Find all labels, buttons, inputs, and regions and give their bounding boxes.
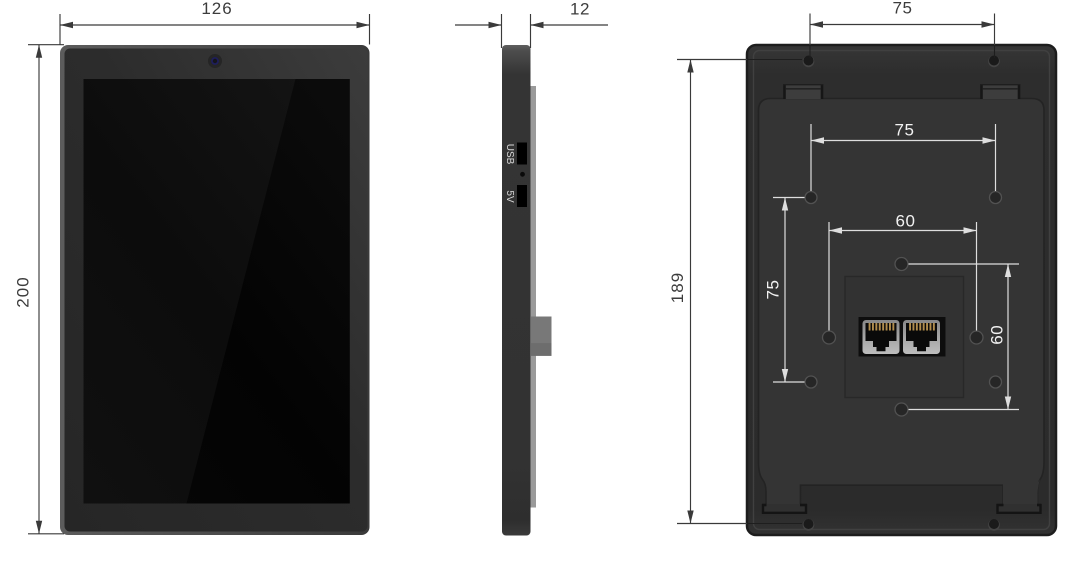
svg-text:5V: 5V xyxy=(504,190,515,203)
svg-text:60: 60 xyxy=(988,325,1007,345)
svg-text:189: 189 xyxy=(668,272,687,303)
svg-text:12: 12 xyxy=(570,0,590,19)
svg-text:60: 60 xyxy=(895,212,915,231)
svg-text:75: 75 xyxy=(894,121,914,140)
svg-text:USB: USB xyxy=(504,144,515,165)
svg-text:75: 75 xyxy=(892,0,912,18)
svg-text:126: 126 xyxy=(201,0,232,18)
svg-text:75: 75 xyxy=(764,279,783,299)
svg-text:200: 200 xyxy=(14,276,33,307)
